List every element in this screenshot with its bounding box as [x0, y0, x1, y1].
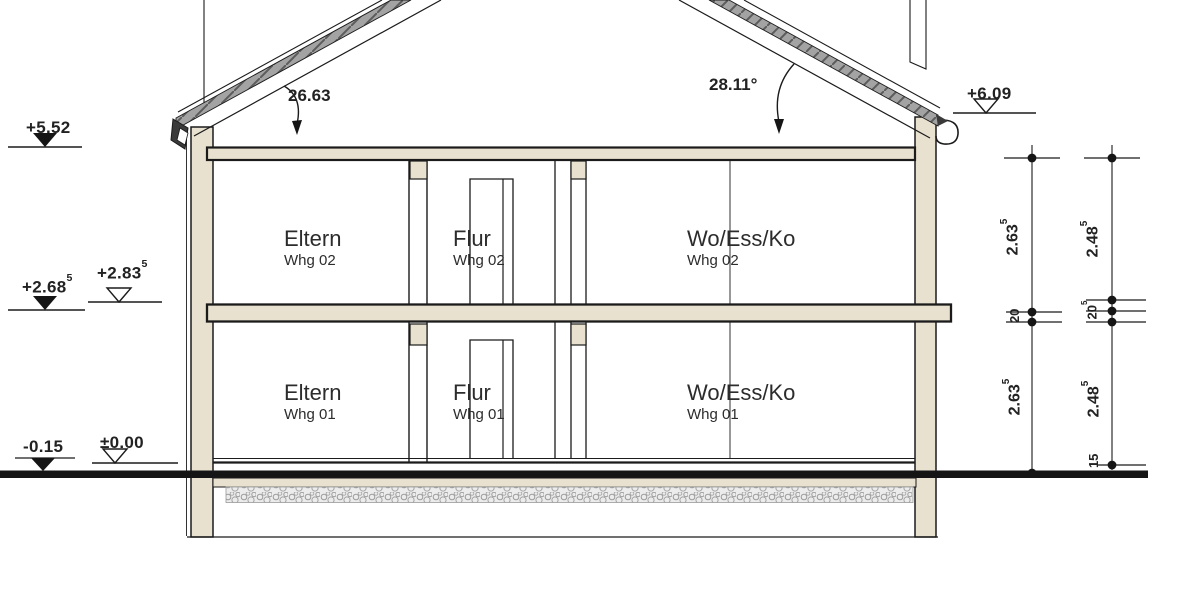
roof-right	[679, 0, 940, 138]
level-label-mid-raw: +2.685	[22, 278, 73, 297]
level-label-mid-fin: +2.835	[97, 264, 148, 283]
mid-floor-slab	[207, 305, 951, 322]
dim-right-lower: 2.485	[1085, 354, 1103, 444]
lintel-block	[571, 161, 586, 179]
lintel-block	[571, 324, 586, 345]
room-label-eltern-whg02: ElternWhg 02	[284, 227, 341, 269]
level-label-roof-left: +5.52	[26, 119, 71, 137]
level-label-ground-fin: ±0.00	[100, 434, 144, 452]
level-triangle-filled	[31, 458, 55, 471]
roof-left	[176, 0, 441, 136]
gravel-layer	[226, 487, 913, 503]
room-label-flur-whg01: FlurWhg 01	[453, 381, 505, 423]
room-label-eltern-whg01: ElternWhg 01	[284, 381, 341, 423]
dim-left-lower: 2.635	[1006, 352, 1024, 442]
level-triangle-open	[107, 288, 131, 302]
ground-and-foundation	[0, 459, 1148, 538]
dim-right-base: 15	[1087, 441, 1101, 481]
dim-right-upper: 2.485	[1084, 194, 1102, 284]
dim-left-slab: 20	[1008, 296, 1022, 336]
roof-angle-left: 26.63	[288, 87, 331, 105]
arrowhead	[292, 120, 302, 135]
arrowhead	[774, 119, 784, 134]
room-label-woessko-whg02: Wo/Ess/KoWhg 02	[687, 227, 795, 269]
room-label-woessko-whg01: Wo/Ess/KoWhg 01	[687, 381, 795, 423]
ceiling-slab	[207, 148, 915, 161]
lintel-block	[410, 161, 427, 179]
roof-angle-right: 28.11°	[709, 76, 757, 94]
level-triangle-filled	[33, 296, 57, 310]
ground-line	[0, 471, 1148, 479]
level-label-ground-raw: -0.15	[23, 438, 63, 456]
section-drawing: +5.52 +2.685 +2.835 -0.15 ±0.00 +6.09 26…	[0, 0, 1200, 600]
dim-left-upper: 2.635	[1004, 192, 1022, 282]
room-label-flur-whg02: FlurWhg 02	[453, 227, 505, 269]
gutter-right	[936, 114, 958, 144]
dim-right-slab: 205	[1085, 290, 1099, 330]
roof-cut-line-right	[910, 0, 926, 69]
lintel-block	[410, 324, 427, 345]
level-label-eave-right: +6.09	[967, 85, 1012, 103]
